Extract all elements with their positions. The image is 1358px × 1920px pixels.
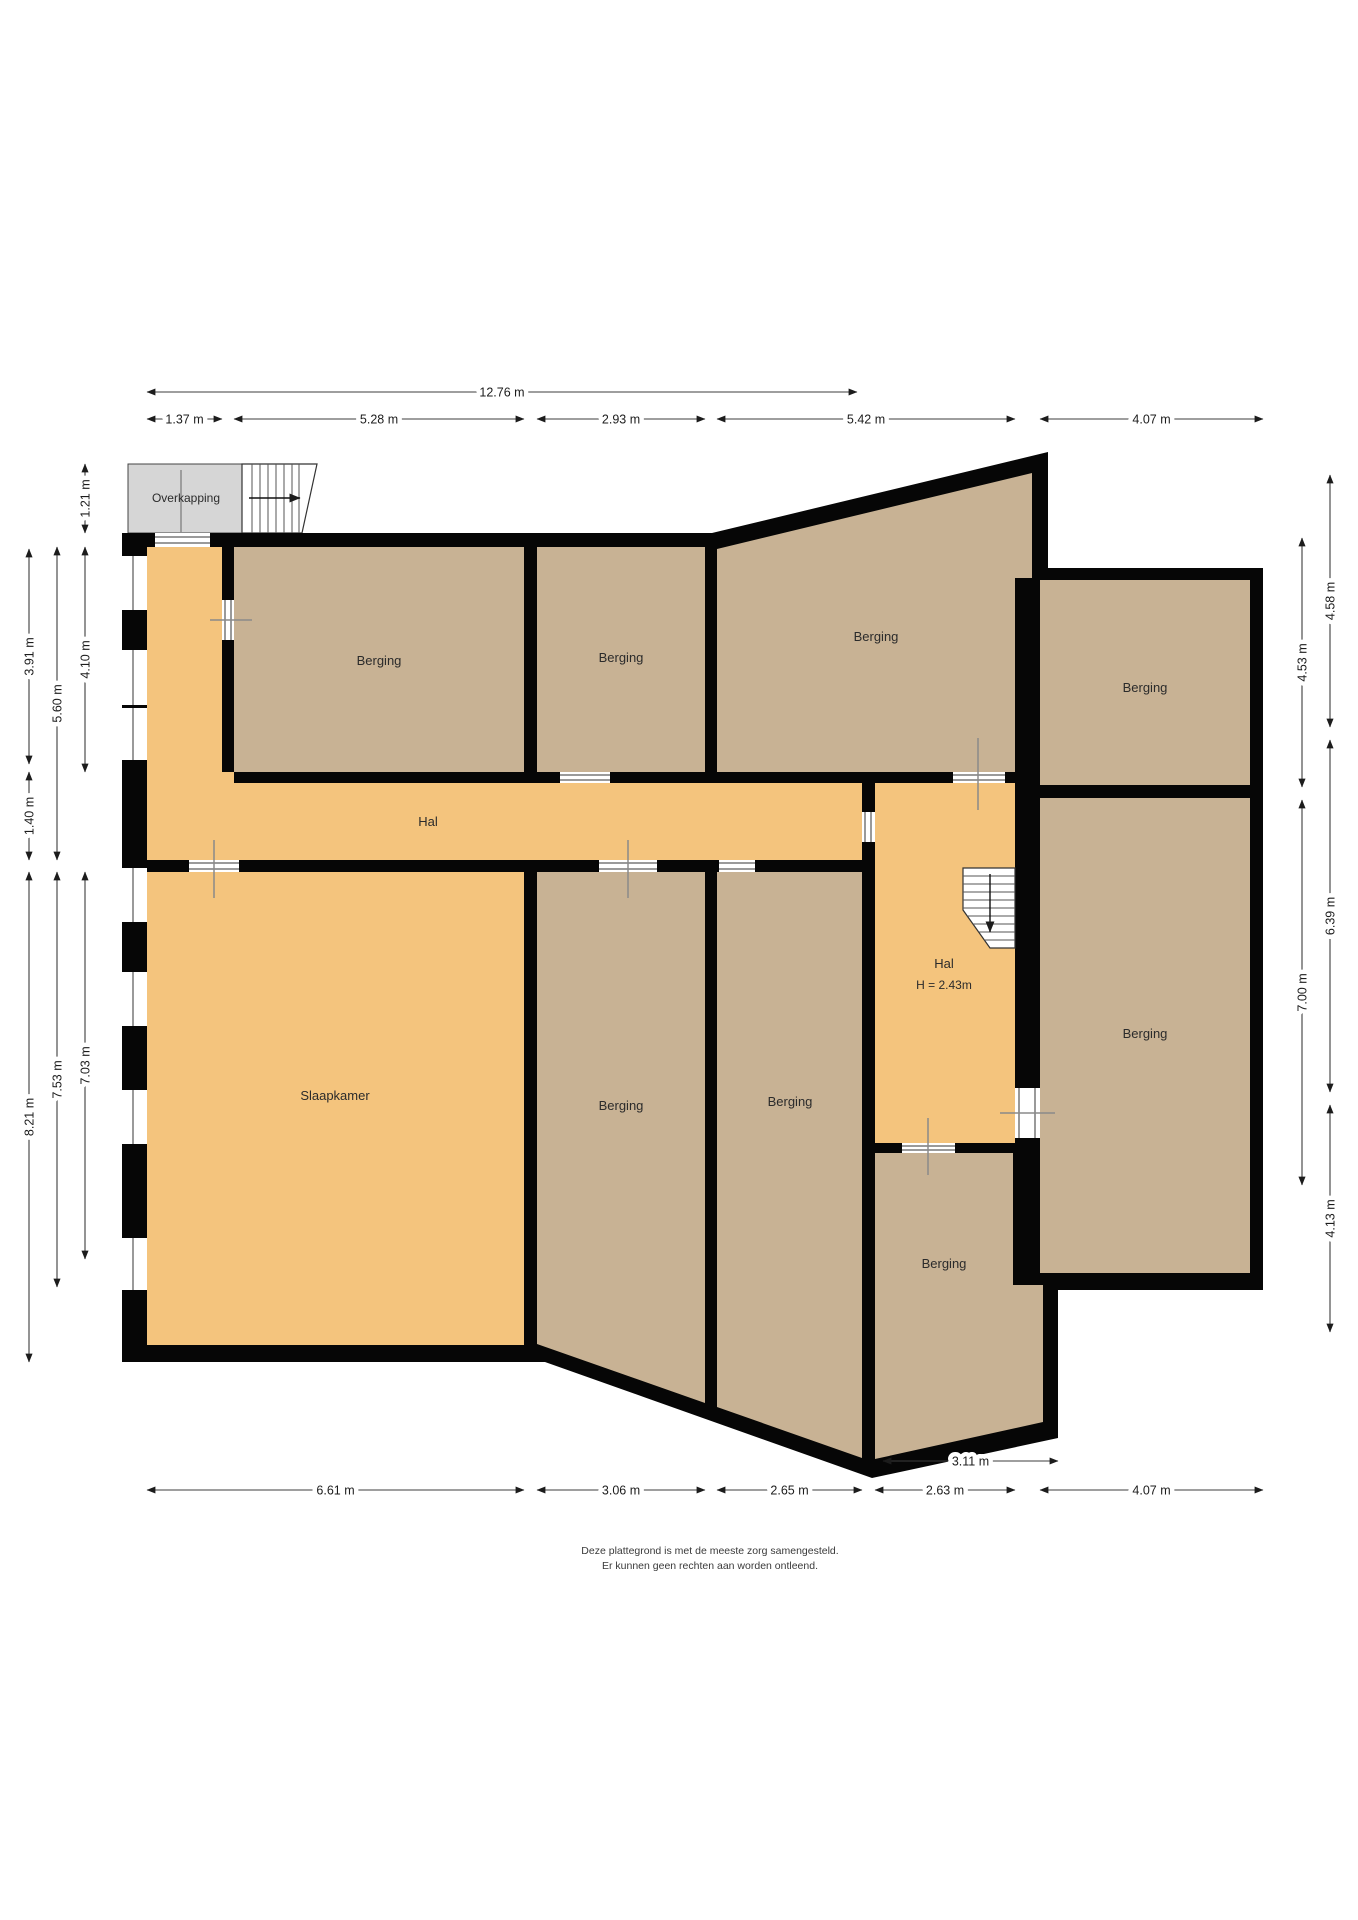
room-berging-top-right <box>717 473 1032 772</box>
dimension-label: 4.53 m <box>1296 643 1310 681</box>
floorplan-page: 12.76 m1.37 m5.28 m2.93 m5.42 m4.07 m3.1… <box>0 0 1358 1920</box>
dimension-label: 6.39 m <box>1324 897 1338 935</box>
dimension-label: 5.60 m <box>51 684 65 722</box>
room-berging-bottom-1 <box>537 872 705 1403</box>
dimension-label: 2.93 m <box>602 413 640 427</box>
door <box>560 772 610 783</box>
dimension-label: 1.37 m <box>165 413 203 427</box>
dimension-label: 1.21 m <box>79 479 93 517</box>
dimension-label: 7.53 m <box>51 1060 65 1098</box>
room-label-berging-top-middle: Berging <box>599 650 644 665</box>
window <box>122 1238 147 1290</box>
room-label-berging-wing-top: Berging <box>1123 680 1168 695</box>
dimension-label: 5.42 m <box>847 413 885 427</box>
disclaimer: Deze plattegrond is met de meeste zorg s… <box>380 1544 1040 1573</box>
room-label-berging-top-right: Berging <box>854 629 899 644</box>
dimension-label: 4.10 m <box>79 640 93 678</box>
dimension-label: 3.91 m <box>23 637 37 675</box>
disclaimer-line-2: Er kunnen geen rechten aan worden ontlee… <box>380 1559 1040 1574</box>
dimension-label: 3.06 m <box>602 1484 640 1498</box>
dimension-label: 7.00 m <box>1296 973 1310 1011</box>
door <box>719 860 755 872</box>
dimension-label: 3.11 m <box>952 1455 989 1469</box>
dimension-label: 2.63 m <box>926 1484 964 1498</box>
dimension-label: 1.40 m <box>23 797 37 835</box>
dimension-label: 4.07 m <box>1132 413 1170 427</box>
dimension-label: 5.28 m <box>360 413 398 427</box>
room-label-berging-bottom-right: Berging <box>922 1256 967 1271</box>
room-label-berging-wing-bottom: Berging <box>1123 1026 1168 1041</box>
room-label-slaapkamer: Slaapkamer <box>300 1088 370 1103</box>
window <box>122 708 147 760</box>
dimension-label: 2.65 m <box>770 1484 808 1498</box>
dimension-label: 4.58 m <box>1324 582 1338 620</box>
window <box>122 650 147 705</box>
room-label-hal-inner-height: H = 2.43m <box>916 978 972 992</box>
room-label-berging-bottom-2: Berging <box>768 1094 813 1109</box>
door <box>862 812 875 842</box>
room-label-berging-bottom-1: Berging <box>599 1098 644 1113</box>
dimension-label: 4.07 m <box>1132 1484 1170 1498</box>
dimension-label: 6.61 m <box>316 1484 354 1498</box>
floorplan-drawing: 12.76 m1.37 m5.28 m2.93 m5.42 m4.07 m3.1… <box>0 0 1358 1920</box>
window <box>122 972 147 1026</box>
dimension-label: 12.76 m <box>479 386 524 400</box>
dimension-label: 8.21 m <box>23 1098 37 1136</box>
room-label-overkapping: Overkapping <box>152 491 220 505</box>
room-label-hal-corridor: Hal <box>418 814 438 829</box>
exterior-staircase <box>242 464 317 533</box>
room-label-hal-inner: Hal <box>934 956 954 971</box>
window <box>122 556 147 610</box>
room-slaapkamer <box>147 872 524 1345</box>
window <box>122 868 147 922</box>
room-berging-bottom-2 <box>717 872 862 1458</box>
window <box>122 1090 147 1144</box>
dimension-label: 7.03 m <box>79 1046 93 1084</box>
room-label-berging-top-left: Berging <box>357 653 402 668</box>
dimension-label: 4.13 m <box>1324 1199 1338 1237</box>
disclaimer-line-1: Deze plattegrond is met de meeste zorg s… <box>380 1544 1040 1559</box>
